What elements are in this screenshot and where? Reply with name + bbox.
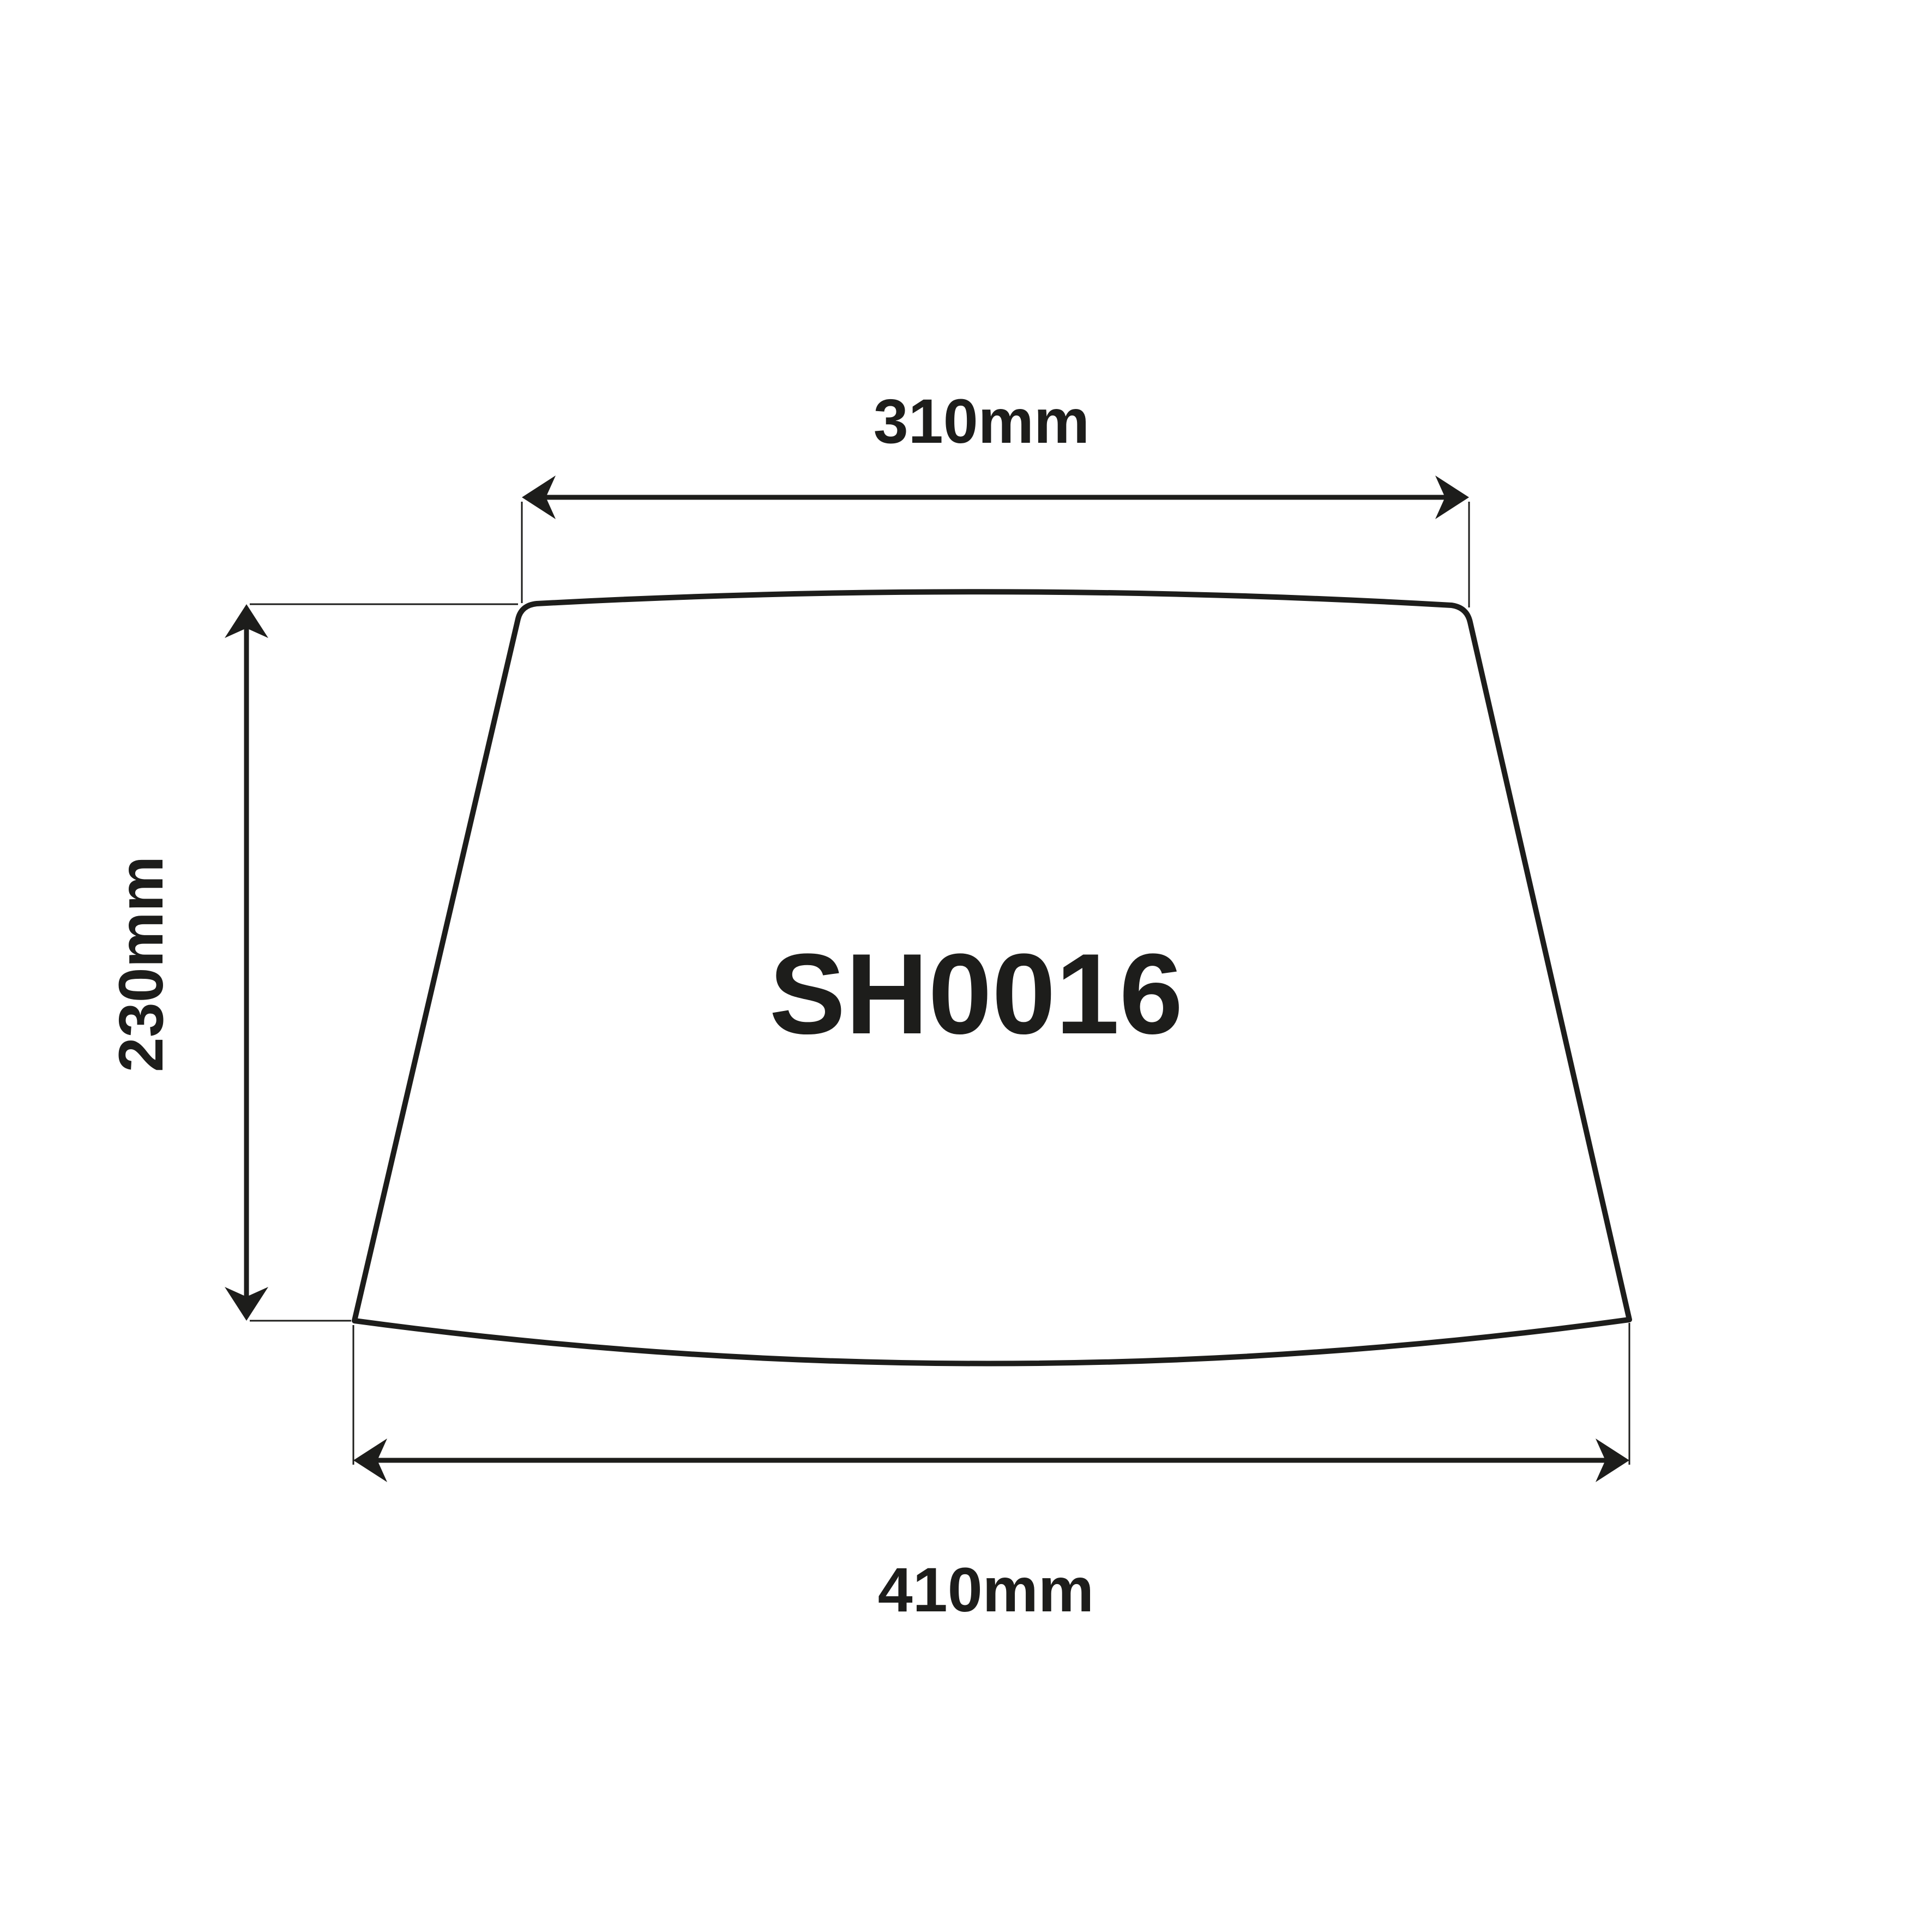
top-width-label: 310mm bbox=[874, 387, 1090, 456]
side-height-label: 230mm bbox=[106, 856, 176, 1072]
lampshade-dimension-diagram: 310mm 230mm 410mm SH0016 bbox=[0, 0, 1932, 1932]
diagram-drawing: 310mm 230mm 410mm SH0016 bbox=[0, 0, 1932, 1932]
bottom-width-label: 410mm bbox=[878, 1555, 1094, 1625]
part-number-label: SH0016 bbox=[769, 930, 1183, 1058]
